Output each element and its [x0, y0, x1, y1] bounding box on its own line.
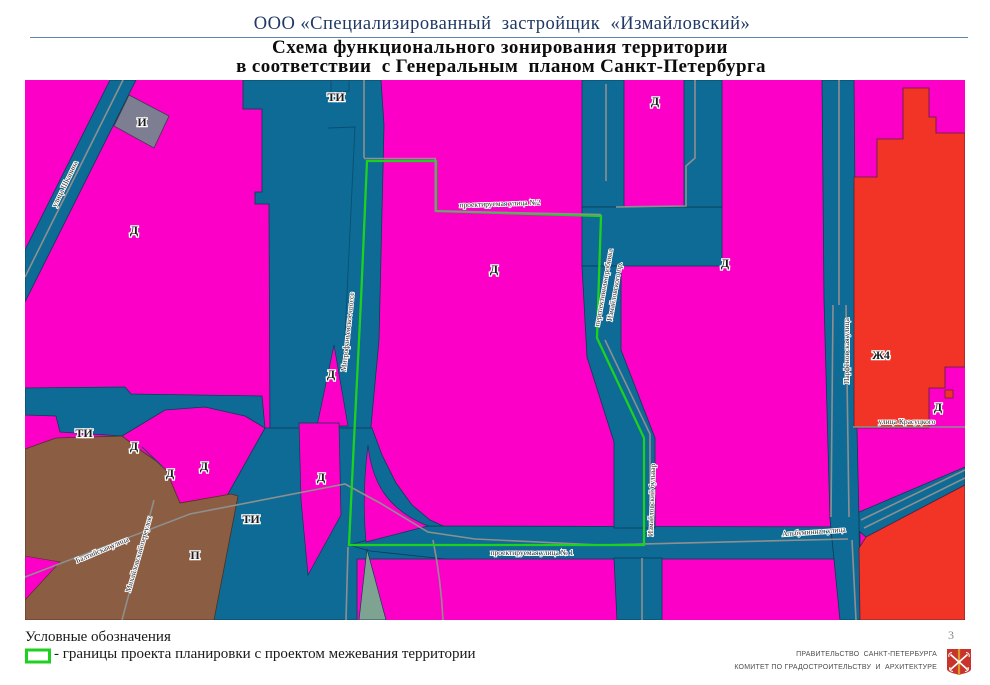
- svg-text:Д: Д: [166, 466, 175, 480]
- svg-text:Д: Д: [317, 470, 326, 484]
- svg-text:улица Красуцкого: улица Красуцкого: [878, 417, 935, 426]
- svg-text:Д: Д: [327, 367, 336, 381]
- svg-text:Парфёновская улица: Парфёновская улица: [842, 317, 851, 384]
- svg-text:Д: Д: [934, 400, 943, 414]
- svg-text:П: П: [190, 548, 200, 562]
- svg-text:проектируемая улица № 1: проектируемая улица № 1: [491, 548, 574, 557]
- svg-text:Д: Д: [490, 262, 499, 276]
- svg-text:Д: Д: [130, 439, 139, 453]
- svg-text:Д: Д: [721, 256, 730, 270]
- svg-text:ТИ: ТИ: [75, 426, 93, 440]
- svg-text:Ж4: Ж4: [872, 348, 890, 362]
- svg-text:Д: Д: [130, 223, 139, 237]
- svg-text:И: И: [137, 115, 147, 129]
- svg-text:Д: Д: [651, 94, 660, 108]
- svg-text:ТИ: ТИ: [327, 90, 345, 104]
- svg-text:ТИ: ТИ: [242, 512, 260, 526]
- svg-text:Д: Д: [200, 459, 209, 473]
